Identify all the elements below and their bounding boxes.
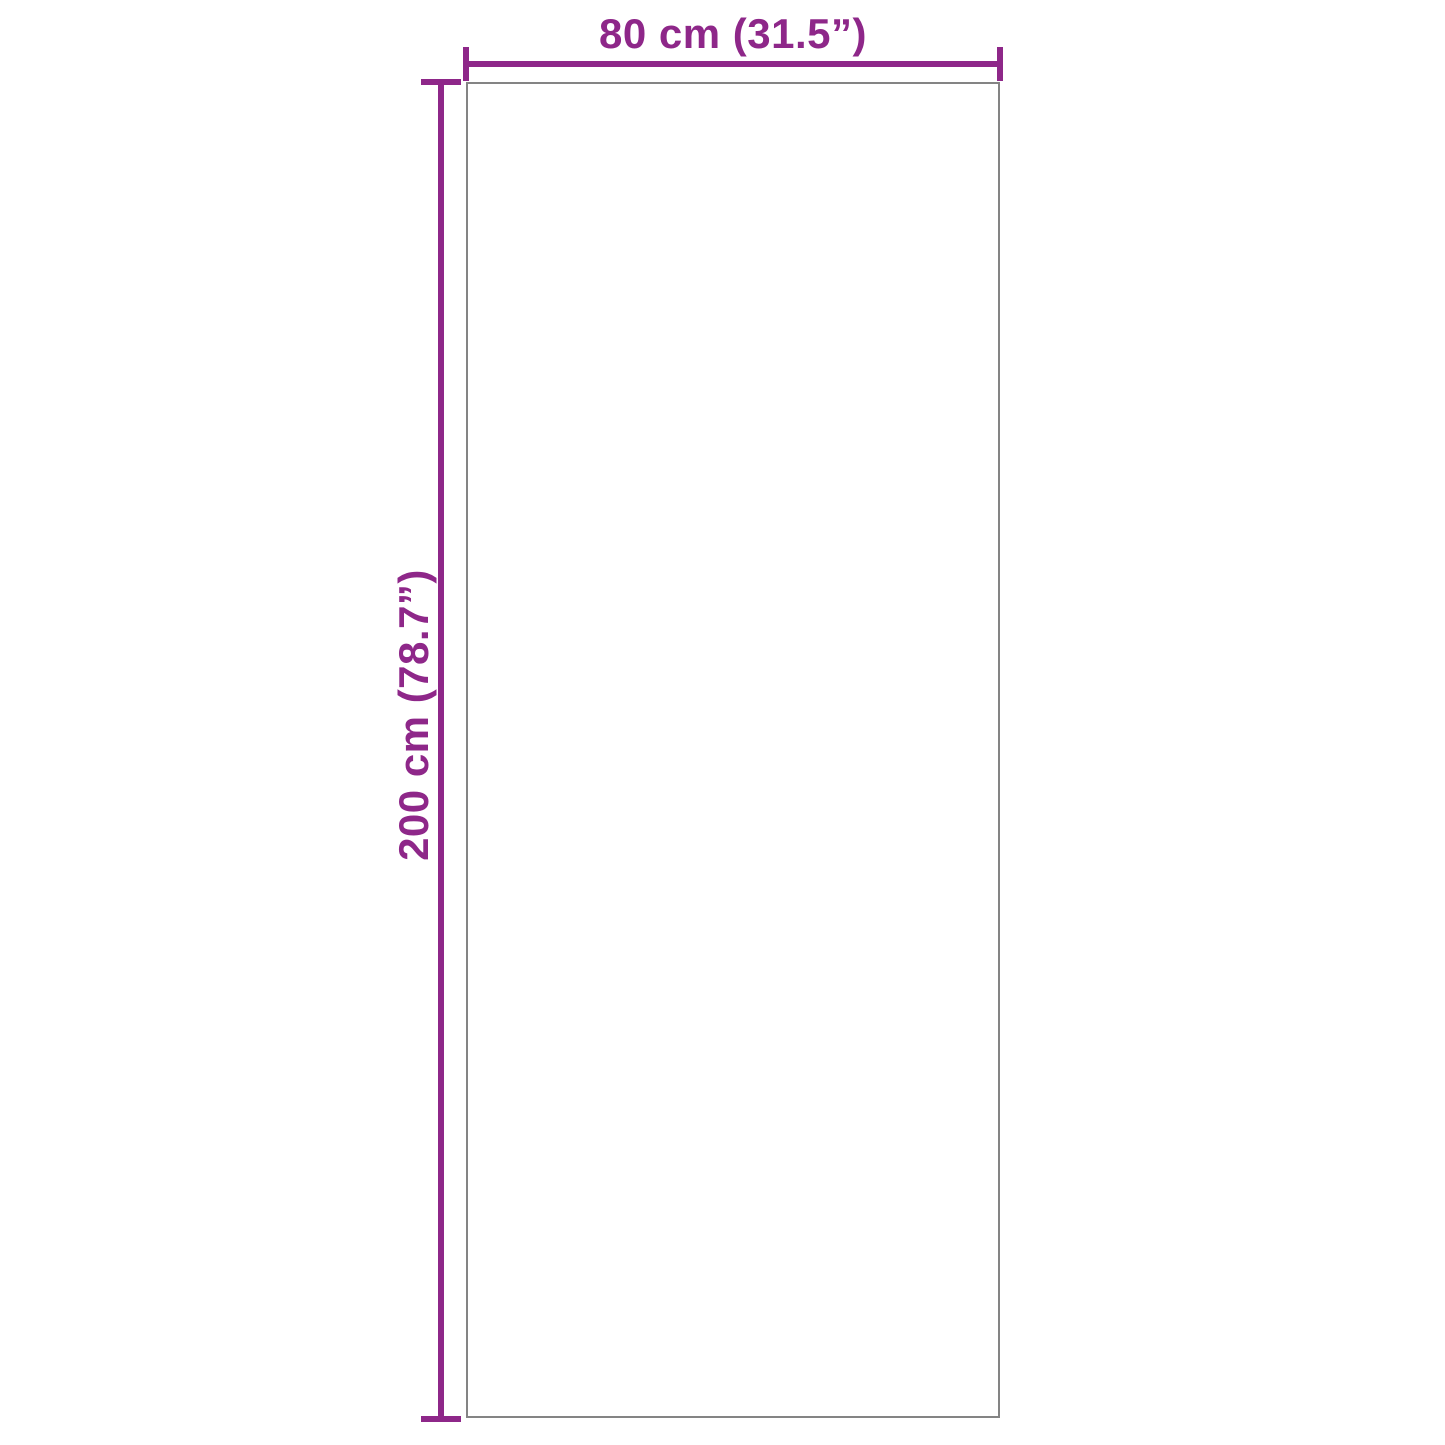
height-dimension-label: 200 cm (78.7”) <box>392 415 436 1015</box>
width-dimension-line <box>466 61 1000 67</box>
height-dimension-line <box>438 82 444 1419</box>
dimension-diagram: 80 cm (31.5”) 200 cm (78.7”) <box>0 0 1445 1445</box>
height-dimension-tick-top <box>421 79 461 85</box>
product-outline-rectangle <box>466 82 1000 1418</box>
height-dimension-tick-bottom <box>421 1416 461 1422</box>
width-dimension-label: 80 cm (31.5”) <box>466 12 1000 56</box>
